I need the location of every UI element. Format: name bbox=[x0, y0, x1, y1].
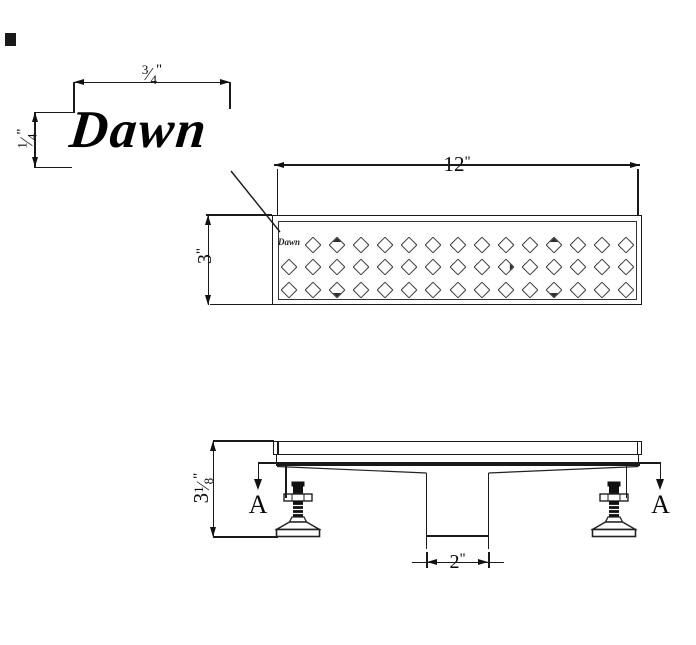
extension-line bbox=[210, 304, 272, 305]
leveling-foot-right bbox=[591, 481, 637, 538]
grate-logo-engraving: Dawn bbox=[278, 238, 304, 247]
extension-line bbox=[35, 112, 75, 113]
dimension-overall-height: 31⁄8" bbox=[191, 461, 215, 515]
section-label-right: A bbox=[646, 492, 676, 518]
unit-mark: " bbox=[156, 62, 162, 78]
dim-line-logo-width bbox=[74, 82, 230, 83]
outlet-wall-left bbox=[426, 473, 427, 549]
rail-inner-edge-right bbox=[637, 442, 638, 454]
extension-line bbox=[213, 536, 278, 537]
arrowhead bbox=[32, 112, 38, 122]
extension-line bbox=[277, 169, 278, 215]
overall-height-whole: 3 bbox=[189, 493, 213, 504]
dimension-grate-width: 3" bbox=[195, 239, 215, 273]
extension-line bbox=[488, 552, 489, 568]
rail-to-flange-edge-left bbox=[276, 455, 277, 463]
extension-line bbox=[213, 440, 274, 441]
channel-bottom-slope-left bbox=[277, 467, 427, 474]
arrowhead bbox=[427, 559, 437, 565]
unit-mark: " bbox=[464, 154, 470, 170]
dim-line-outlet-width bbox=[412, 562, 504, 563]
section-cut-line-left bbox=[258, 462, 277, 463]
construction-lines bbox=[0, 0, 696, 645]
rail-inner-edge-left bbox=[277, 442, 278, 454]
arrowhead bbox=[210, 527, 216, 537]
extension-line bbox=[35, 167, 72, 168]
technical-drawing-canvas: Dawn 3⁄4" 1⁄4" Dawn 12" 3" 31⁄8" 2" A A bbox=[0, 0, 696, 645]
fraction-slash: ⁄ bbox=[193, 484, 213, 487]
overall-height-numerator: 1 bbox=[191, 487, 206, 493]
channel-bottom-slope-right bbox=[489, 467, 639, 474]
extension-line bbox=[206, 214, 272, 215]
grate-width-value: 3 bbox=[194, 254, 216, 264]
unit-mark: " bbox=[459, 551, 465, 567]
outlet-bottom-edge bbox=[426, 535, 489, 536]
logo-height-numerator: 1 bbox=[15, 143, 30, 149]
channel-flange bbox=[276, 462, 640, 466]
dim-line-overall-height bbox=[213, 441, 214, 538]
unit-mark: " bbox=[191, 473, 207, 479]
extension-line bbox=[73, 82, 74, 113]
arrowhead bbox=[205, 295, 211, 305]
section-arrow-right bbox=[656, 479, 664, 490]
channel-top-rail bbox=[273, 441, 642, 455]
arrowhead bbox=[478, 559, 488, 565]
unit-mark: " bbox=[15, 128, 31, 134]
logo-height-denominator: 4 bbox=[25, 135, 40, 141]
arrowhead bbox=[274, 162, 284, 168]
foot-bracket-right bbox=[626, 466, 627, 498]
extension-line bbox=[637, 169, 638, 215]
section-cut-line-right bbox=[639, 462, 661, 463]
section-arrow-left bbox=[254, 479, 262, 490]
arrowhead bbox=[32, 157, 38, 167]
arrowhead bbox=[630, 162, 640, 168]
corner-registration-mark bbox=[5, 33, 16, 46]
outlet-wall-right bbox=[488, 473, 489, 549]
arrowhead bbox=[220, 79, 230, 85]
dim-line-grate-length bbox=[274, 164, 640, 165]
foot-bracket-left bbox=[285, 466, 286, 498]
arrowhead bbox=[205, 215, 211, 225]
dim-line-grate-width bbox=[208, 215, 209, 305]
arrowhead bbox=[210, 441, 216, 451]
rail-to-flange-edge-right bbox=[638, 455, 639, 463]
arrowhead bbox=[74, 79, 84, 85]
extension-line bbox=[229, 82, 230, 109]
section-label-left: A bbox=[243, 492, 273, 518]
leveling-foot-left bbox=[275, 481, 321, 538]
brand-logo-text: Dawn bbox=[67, 101, 243, 159]
